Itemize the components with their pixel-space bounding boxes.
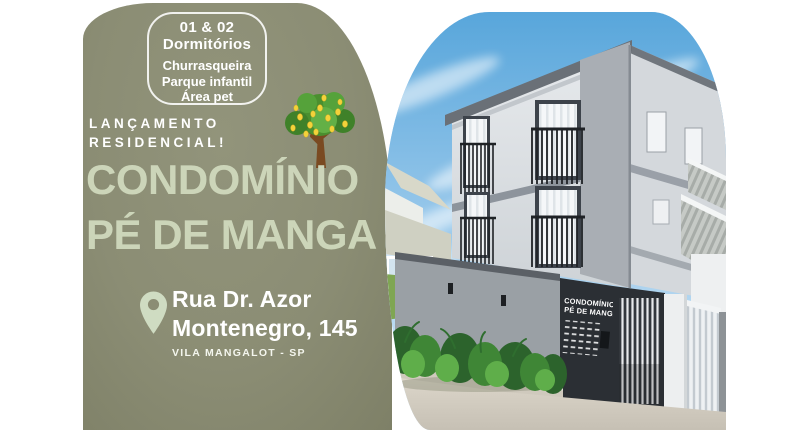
- address-district: VILA MANGALOT - SP: [172, 347, 358, 359]
- window: [647, 112, 666, 152]
- gate-pillar: [664, 294, 687, 424]
- badge-feature-pet: Área pet: [149, 89, 265, 105]
- pillar-shade: [684, 294, 687, 424]
- address-block: Rua Dr. Azor Montenegro, 145 VILA MANGAL…: [172, 285, 358, 359]
- photo-panel: CONDOMÍNIO PÉ DE MANGA: [385, 12, 726, 430]
- mailbox-grid: [562, 320, 602, 356]
- condo-title: CONDOMÍNIO PÉ DE MANGA: [86, 152, 377, 262]
- corner-granite-band: [580, 42, 630, 288]
- garage-gate: [687, 300, 726, 424]
- badge-rooms-line2: Dormitórios: [149, 36, 265, 53]
- launch-line2: RESIDENCIAL!: [89, 133, 227, 152]
- building-photo: CONDOMÍNIO PÉ DE MANGA: [385, 12, 726, 430]
- badge-feature-churrasqueira: Churrasqueira: [149, 58, 265, 74]
- condo-title-line1: CONDOMÍNIO: [86, 152, 377, 207]
- wall-sconce-light: [448, 283, 453, 294]
- address-street-line2: Montenegro, 145: [172, 314, 358, 343]
- condo-title-line2: PÉ DE MANGA: [86, 207, 377, 262]
- intercom-panel: [600, 331, 610, 349]
- launch-heading: LANÇAMENTO RESIDENCIAL!: [89, 114, 227, 152]
- window: [685, 128, 702, 164]
- balcony-window: [531, 100, 585, 184]
- balcony-window: [531, 186, 585, 268]
- badge-rooms-line1: 01 & 02: [149, 19, 265, 36]
- badge-feature-parque: Parque infantil: [149, 74, 265, 90]
- entrance-gate: [613, 286, 665, 414]
- window: [653, 200, 669, 224]
- flyer-canvas: 01 & 02 Dormitórios Churrasqueira Parque…: [0, 0, 810, 430]
- info-badge: 01 & 02 Dormitórios Churrasqueira Parque…: [147, 12, 267, 105]
- address-street-line1: Rua Dr. Azor: [172, 285, 358, 314]
- wall-sconce-light: [501, 295, 506, 306]
- launch-line1: LANÇAMENTO: [89, 114, 227, 133]
- location-pin-icon: [140, 290, 167, 347]
